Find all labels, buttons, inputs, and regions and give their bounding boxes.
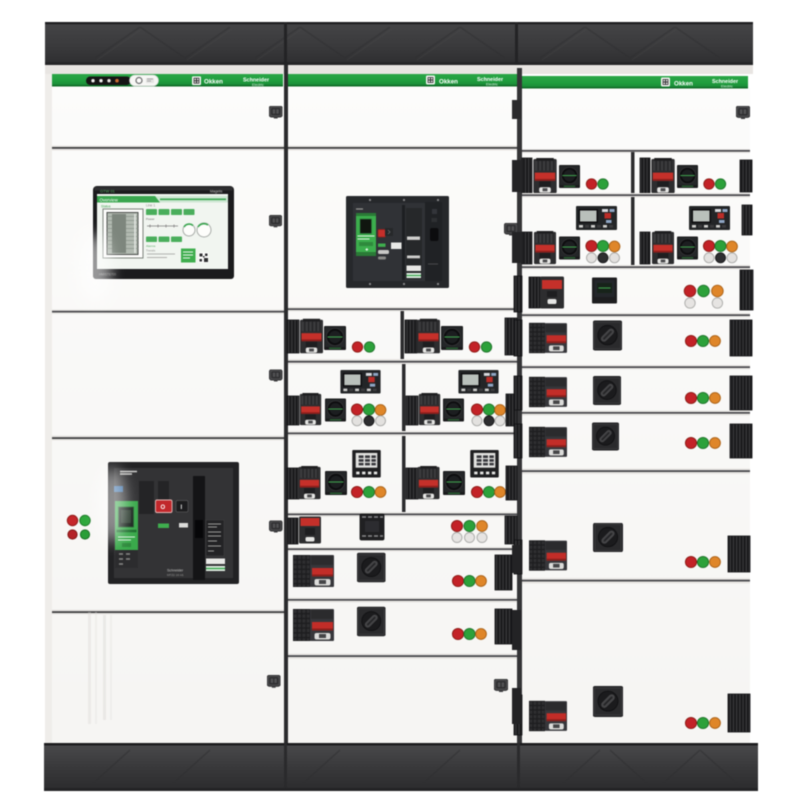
svg-text:Status: Status	[101, 205, 111, 209]
svg-text:Electric: Electric	[252, 83, 264, 87]
svg-text:Okken: Okken	[674, 81, 693, 88]
svg-text:Okken: Okken	[204, 79, 223, 86]
svg-text:Electric: Electric	[486, 83, 498, 87]
svg-text:O: O	[161, 505, 166, 511]
svg-text:Magelis: Magelis	[210, 190, 223, 194]
svg-text:Electric: Electric	[721, 85, 733, 89]
svg-text:Trends: Trends	[146, 249, 156, 253]
svg-text:MTZ2 16 H1: MTZ2 16 H1	[167, 573, 184, 577]
svg-text:Alarms: Alarms	[146, 244, 156, 248]
svg-text:Overview: Overview	[100, 198, 119, 203]
svg-text:Power: Power	[146, 217, 155, 221]
svg-text:Schneider: Schneider	[167, 569, 184, 573]
svg-text:Line 1: Line 1	[146, 204, 155, 208]
svg-text:GTW 01: GTW 01	[100, 189, 116, 194]
svg-text:Okken: Okken	[439, 79, 458, 86]
